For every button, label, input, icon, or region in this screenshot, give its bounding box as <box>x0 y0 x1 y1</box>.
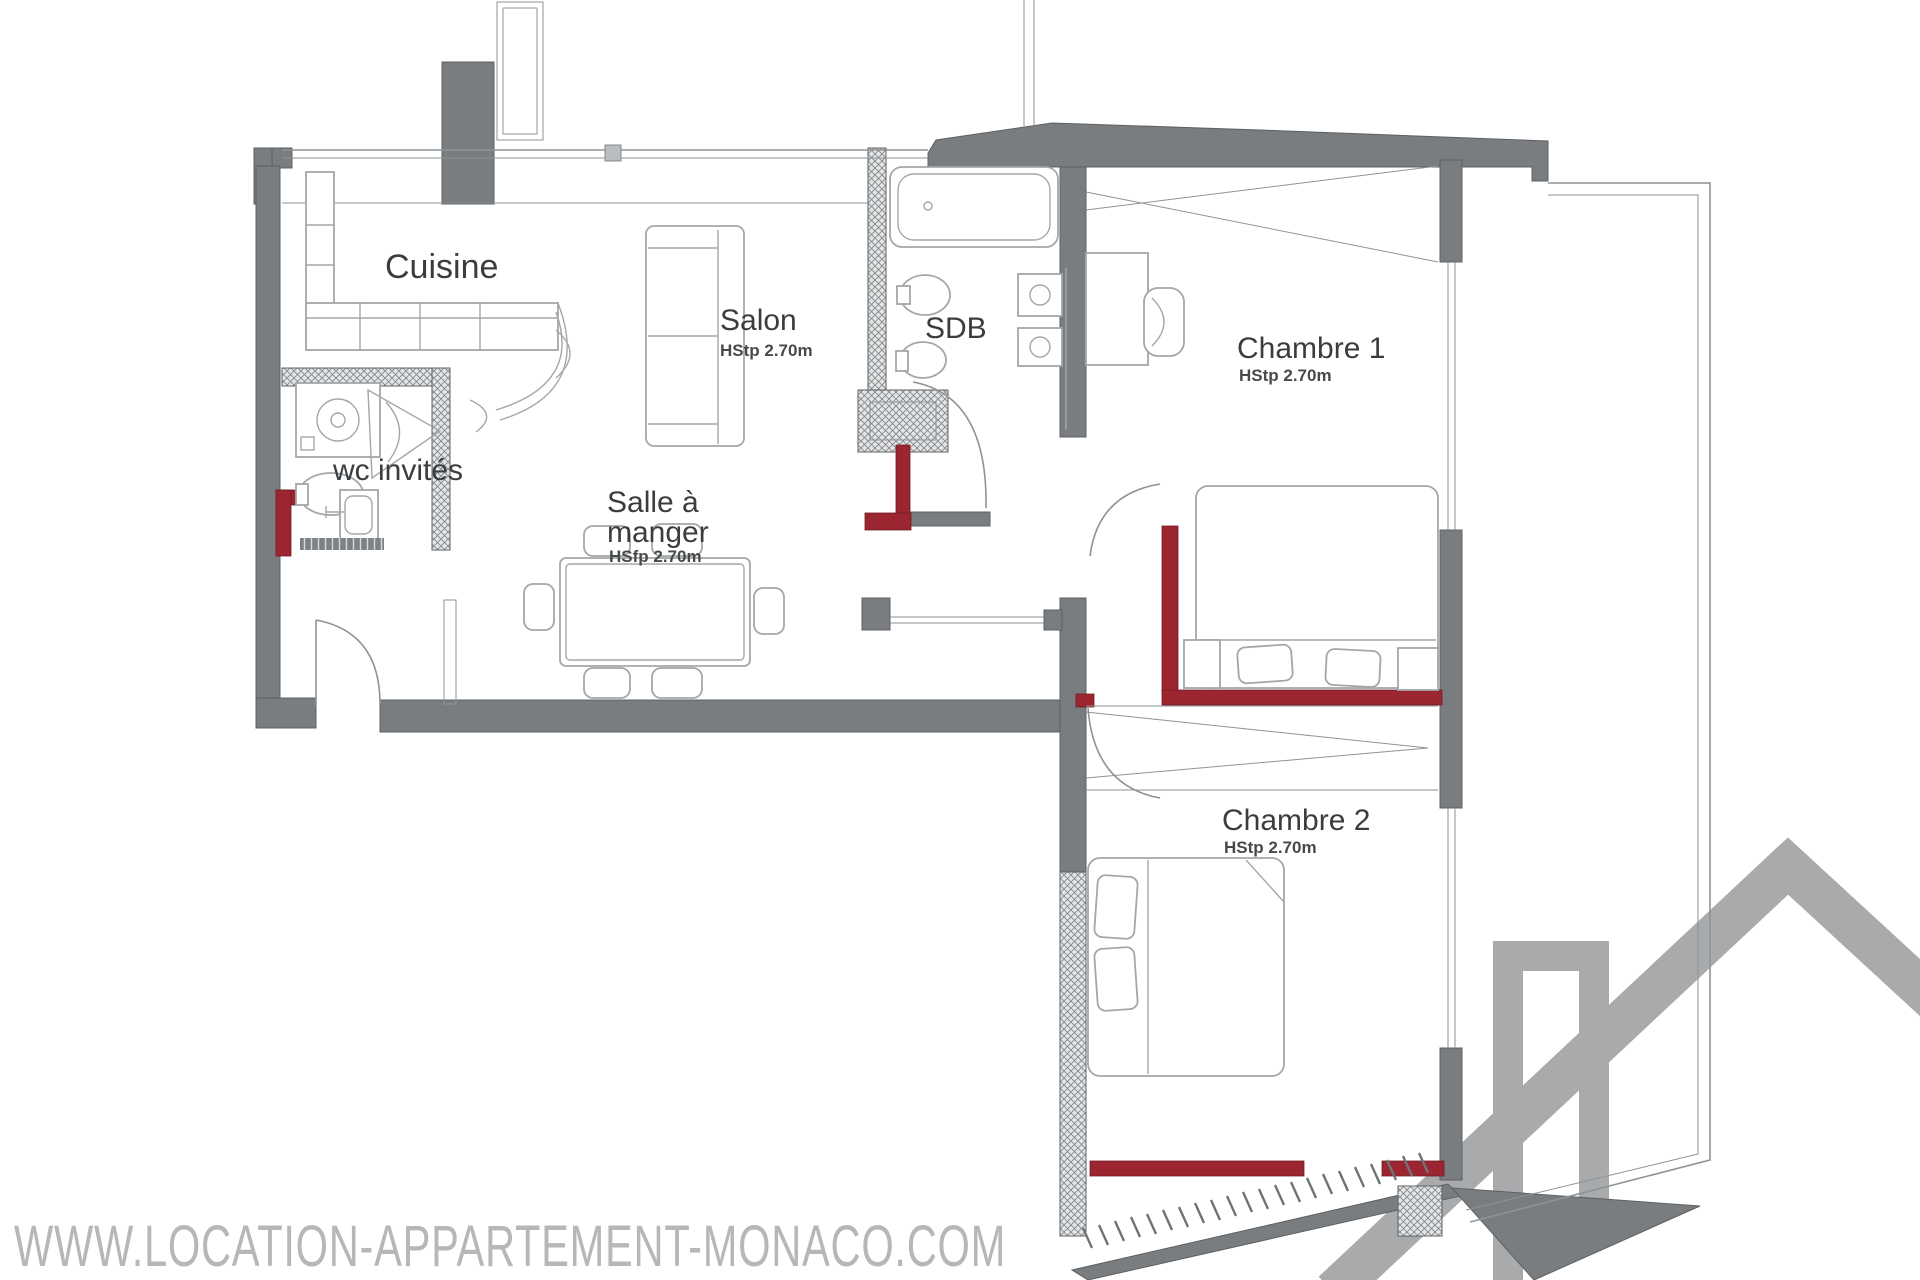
chambre1-diagonal-2 <box>1086 192 1438 262</box>
label-sdb: SDB <box>925 312 987 345</box>
wall-sdb-south <box>906 512 990 526</box>
nightstand-icon <box>1184 640 1220 688</box>
wardrobe-diagonal-1 <box>1086 712 1428 748</box>
terrace-edge-triangle <box>1452 1188 1700 1280</box>
toilet-tank <box>296 484 308 505</box>
double-sink-icon <box>1018 274 1062 316</box>
shower-arc <box>386 402 400 462</box>
pillow-icon <box>1237 644 1293 684</box>
duct-shaft <box>497 2 543 140</box>
wall-bottom-left-wing <box>380 700 1062 732</box>
closet-frame <box>858 390 948 452</box>
red-wall-wc-vertical <box>276 490 291 556</box>
chair-icon <box>584 668 630 698</box>
label-chambre1: Chambre 1 <box>1237 332 1385 365</box>
wall-sdb-left-hatched <box>868 148 886 396</box>
wall-left-foot <box>256 698 316 728</box>
chambre2-furniture <box>1088 858 1284 1076</box>
window-tick <box>605 145 621 161</box>
label-wc-invites: wc invités <box>332 454 463 487</box>
chair-icon <box>524 584 554 630</box>
wardrobe-diagonal-2 <box>1086 748 1428 778</box>
red-wall-chambre1-vertical <box>1162 526 1178 694</box>
bathtub-icon <box>890 167 1058 247</box>
floor-plan-canvas: Cuisine Salon HStp 2.70m SDB wc invités … <box>0 0 1920 1280</box>
label-salon: Salon <box>720 304 797 337</box>
chambre1-door-arc <box>1090 484 1160 556</box>
pillow-icon <box>1325 649 1381 688</box>
wall-window-stub-bottom <box>1440 1048 1462 1180</box>
nightstand-icon <box>1398 648 1438 690</box>
label-salle-a-manger-1: Salle à <box>607 486 699 519</box>
label-chambre2: Chambre 2 <box>1222 804 1370 837</box>
red-wall-corridor-vertical <box>896 445 910 521</box>
red-wall-corridor-horizontal <box>865 513 911 530</box>
duct-shaft-inner <box>503 8 537 134</box>
pillow-icon <box>1094 875 1138 940</box>
red-wall-chambre2-left <box>1090 1161 1304 1176</box>
toilet-tank <box>896 351 908 371</box>
wall-central-upper <box>1060 165 1086 437</box>
chair-icon <box>652 668 702 698</box>
label-cuisine: Cuisine <box>385 248 498 286</box>
red-wall-chambre1-horizontal <box>1162 690 1442 705</box>
wall-window-stub-mid <box>1440 530 1462 808</box>
wall-chambre2-left-hatched <box>1060 872 1086 1236</box>
chambre1-diagonal-1 <box>1086 166 1438 210</box>
bidet-base <box>897 286 910 304</box>
chambre2-door-arc <box>1088 708 1160 798</box>
wall-left <box>256 166 280 706</box>
washing-machine-icon <box>296 383 380 457</box>
chair-icon <box>754 588 784 634</box>
red-wall-junction <box>1076 694 1094 707</box>
desk-icon <box>1086 253 1148 365</box>
label-salle-a-manger-2: manger <box>607 516 709 549</box>
radiator-icon <box>300 538 384 550</box>
wall-central-lower <box>1060 598 1086 872</box>
label-chambre1-height: HStp 2.70m <box>1239 366 1332 385</box>
wall-corridor-stub <box>862 598 890 630</box>
bar-stool-icon <box>470 400 487 432</box>
double-sink-icon <box>1018 328 1062 366</box>
label-salon-height: HStp 2.70m <box>720 341 813 360</box>
kitchen-counter-band <box>306 303 558 350</box>
wall-terrace-hatched <box>1398 1186 1442 1236</box>
dining-table-icon <box>560 558 750 666</box>
pillow-icon <box>1094 947 1138 1012</box>
wall-window-stub-top <box>1440 160 1462 262</box>
partition-low-wall <box>444 600 456 704</box>
wall-pillar <box>442 62 494 204</box>
label-salle-a-manger-height: HSfp 2.70m <box>609 547 702 566</box>
entry-door-arc <box>316 620 380 704</box>
watermark-text: WWW.LOCATION-APPARTEMENT-MONACO.COM <box>14 1214 1006 1279</box>
wall-corridor-block <box>1044 610 1062 630</box>
label-chambre2-height: HStp 2.70m <box>1224 838 1317 857</box>
chambre1-furniture <box>1086 253 1438 690</box>
